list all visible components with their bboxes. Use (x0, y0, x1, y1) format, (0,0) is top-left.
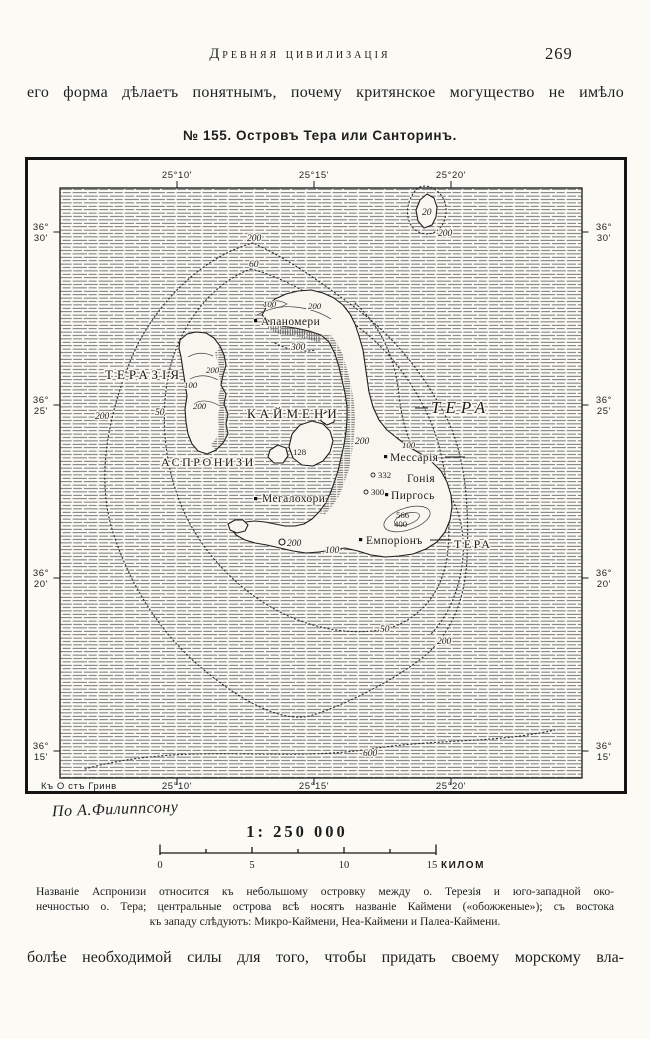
latitude-label: 20' (34, 579, 48, 590)
land-contour-label: 200 (206, 365, 220, 375)
sea-depth-label: 50 (380, 625, 390, 635)
elevation-label: 128 (293, 447, 307, 457)
sea-depth-label: 300 (290, 343, 306, 353)
latitude-label: 36° (596, 395, 612, 406)
region-label-thera-south: ТЕРА (454, 537, 492, 551)
latitude-label: 30' (597, 233, 611, 244)
sea-depth-label: 20 (422, 208, 432, 218)
town-label-apanomeri: Апаномери (261, 316, 320, 328)
sea-depth-label: 200 (95, 412, 110, 422)
town-label-gonia: Гонія (407, 473, 435, 485)
longitude-label: 25°15' (299, 170, 329, 181)
sea-depth-label: 200 (438, 229, 453, 239)
scale-bar: 0 5 10 15 КИЛОМ (138, 842, 518, 876)
latitude-label: 36° (596, 222, 612, 233)
latitude-label: 36° (33, 568, 49, 579)
latitude-label: 15' (34, 752, 48, 763)
greenwich-note: Къ О стъ Гринв (41, 781, 117, 792)
town-label-emporion: Емпоріонъ (366, 535, 423, 547)
caption-line: нечностью о. Тера; центральные острова в… (36, 899, 614, 914)
sea-depth-label: 600 (363, 749, 378, 759)
latitude-label: 36° (33, 741, 49, 752)
region-label-therasia: ТЕРАЗІЯ (105, 367, 183, 382)
longitude-label: 25°10' (162, 781, 192, 792)
elevation-label: 400 (394, 519, 408, 529)
town-label-messaria: Мессарія (390, 452, 439, 464)
sea-area (60, 188, 582, 778)
sea-depth-label: 200 (355, 437, 370, 447)
land-contour-label: 200 (308, 301, 322, 311)
sea-depth-label: 200 (287, 539, 302, 549)
page-number: 269 (545, 44, 573, 64)
elevation-label: 300 (371, 487, 385, 497)
latitude-label: 25' (34, 406, 48, 417)
longitude-label: 25°10' (162, 170, 192, 181)
elevation-label: 332 (378, 470, 391, 480)
book-page: Древняя цивилизація 269 его форма дѣлает… (0, 0, 650, 1039)
region-label-kaimeni: КАЙМЕНИ (247, 406, 341, 421)
scale-tick-label: 10 (339, 860, 350, 871)
figure-caption: Названіе Аспронизи относится къ небольшо… (36, 884, 614, 930)
latitude-label: 36° (596, 568, 612, 579)
caption-line: къ западу слѣдуютъ: Микро-Каймени, Неа-К… (36, 914, 614, 929)
land-contour-label: 100 (263, 299, 277, 309)
land-contour-label: 100 (184, 380, 198, 390)
map-attribution: По А.Филиппсону (52, 799, 179, 821)
intro-paragraph: его форма дѣлаетъ понятнымъ, почему крит… (27, 84, 624, 102)
sea-depth-label: 60 (249, 260, 259, 270)
sea-depth-label: 200 (247, 234, 262, 244)
region-label-thera: ТЕРА (431, 398, 490, 417)
scale-tick-label: 15 (427, 860, 438, 871)
region-label-aspronisi: АСПРОНИЗИ (161, 455, 256, 469)
map-frame (27, 159, 626, 793)
latitude-label: 30' (34, 233, 48, 244)
closing-paragraph: болѣе необходимой силы для того, чтобы п… (27, 949, 624, 967)
running-head: Древняя цивилизація (0, 46, 600, 63)
scale-unit-label: КИЛОМ (441, 860, 485, 871)
latitude-label: 36° (596, 741, 612, 752)
islet-south-caldera (279, 539, 285, 545)
figure-title: № 155. Островъ Тера или Санторинъ. (0, 128, 640, 143)
land-contour-label: 100 (402, 440, 416, 450)
latitude-label: 20' (597, 579, 611, 590)
sea-depth-label: 50 (155, 408, 165, 418)
map-scale-ratio: 1: 250 000 (0, 822, 594, 842)
town-label-megalochori: Мегалохори (262, 493, 325, 505)
longitude-label: 25°20' (436, 170, 466, 181)
scale-tick-label: 0 (157, 860, 162, 871)
sea-depth-label: 100 (325, 546, 340, 556)
longitude-label: 25°15' (299, 781, 329, 792)
land-contour-label: 200 (193, 401, 207, 411)
latitude-label: 15' (597, 752, 611, 763)
latitude-label: 36° (33, 222, 49, 233)
latitude-label: 25' (597, 406, 611, 417)
caption-line: Названіе Аспронизи относится къ небольшо… (36, 884, 614, 899)
town-label-pyrgos: Пиргось (391, 490, 435, 502)
latitude-label: 36° (33, 395, 49, 406)
sea-depth-label: 200 (437, 637, 452, 647)
longitude-label: 25°20' (436, 781, 466, 792)
scale-tick-label: 5 (249, 860, 254, 871)
map-canvas: 25°10' 25°15' 25°20' 25°10' 25°15' 25°20… (25, 157, 627, 794)
